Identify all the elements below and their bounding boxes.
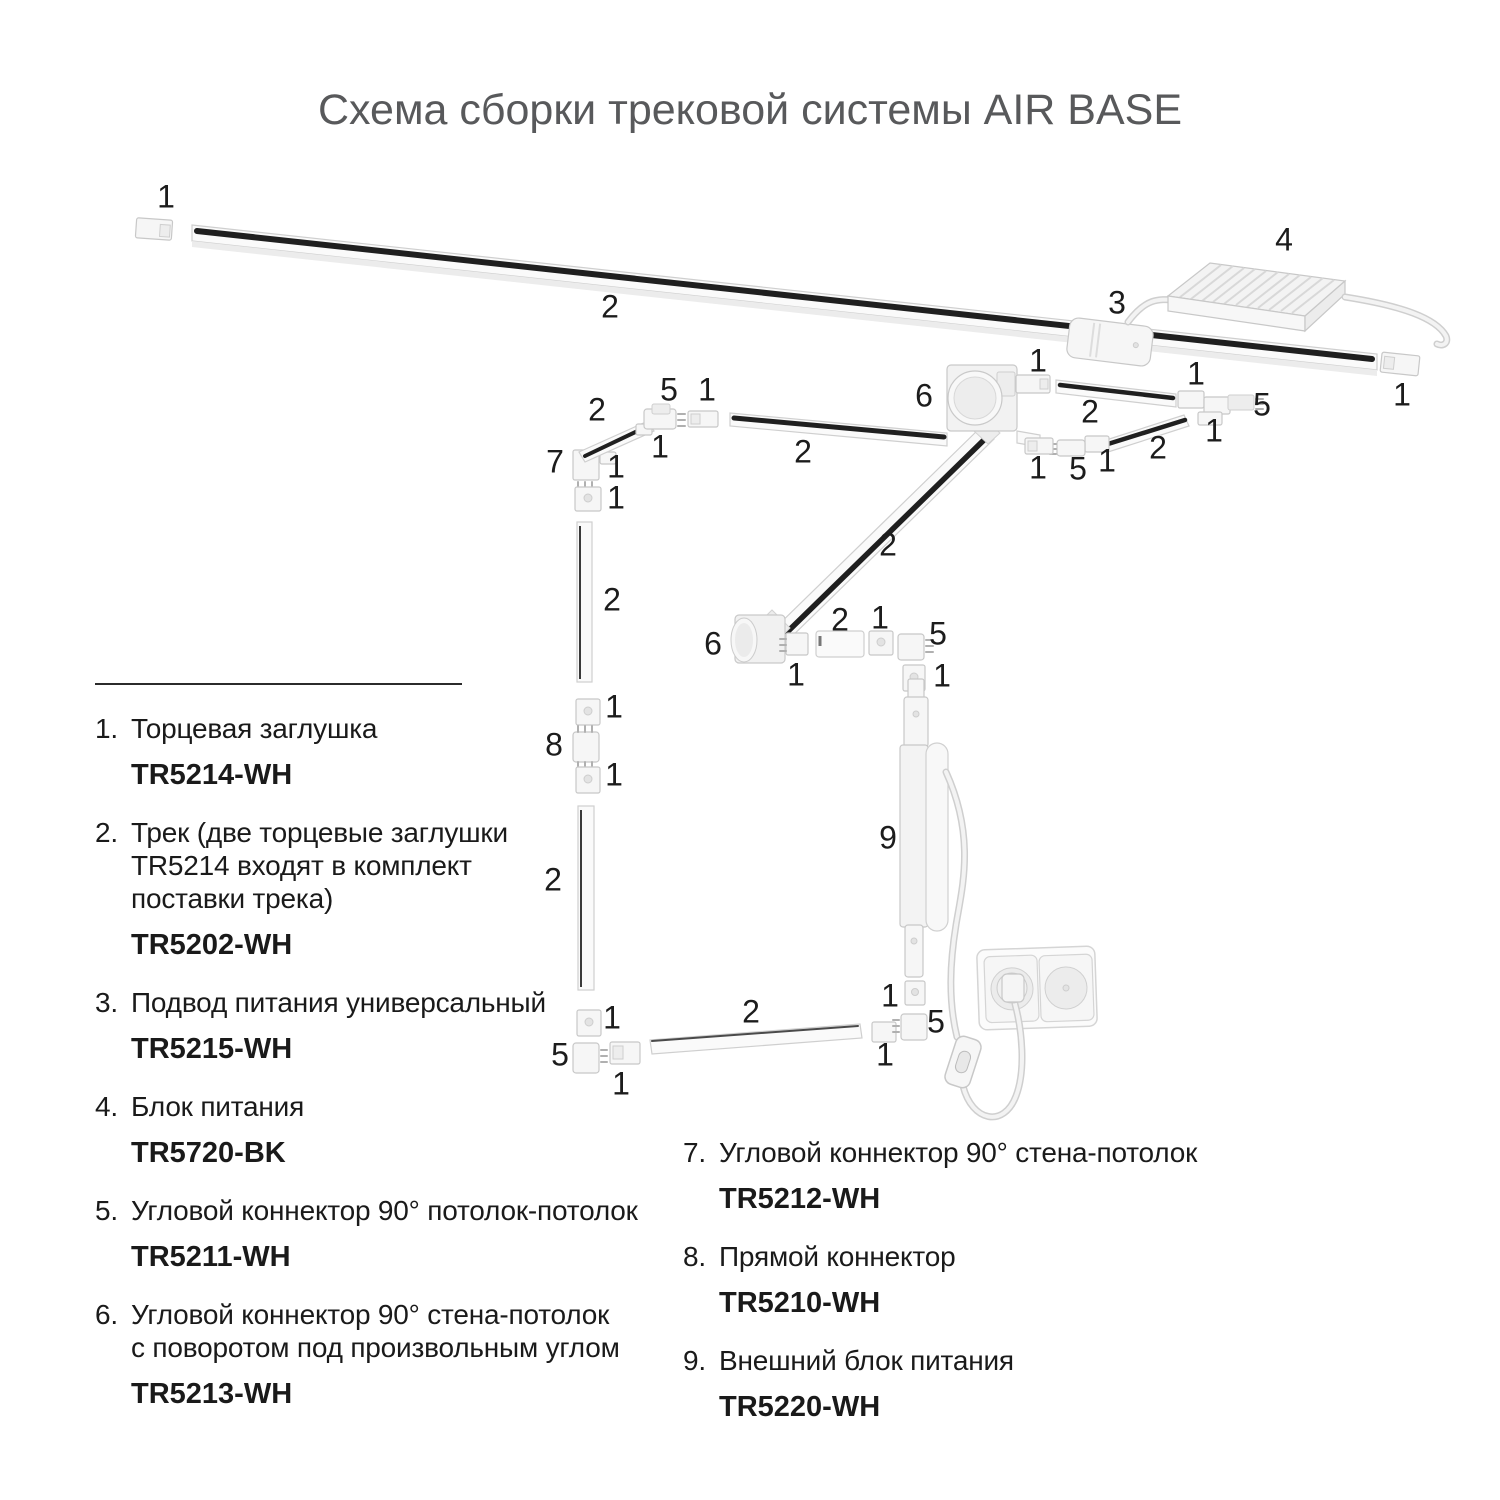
legend-item: 1. Торцевая заглушка TR5214-WH (95, 712, 655, 792)
legend-item-code: TR5720-BK (131, 1137, 655, 1170)
track-short-mid (816, 631, 864, 657)
legend-divider (95, 683, 462, 685)
legend-item: 4. Блок питания TR5720-BK (95, 1090, 655, 1170)
swivel-connector-6-lower (731, 610, 790, 663)
legend-item-text: Угловой коннектор 90° стена-потолокс пов… (131, 1298, 655, 1364)
power-supply-4 (1168, 263, 1447, 345)
psu-cord (946, 772, 965, 1037)
legend-item-code: TR5215-WH (131, 1033, 655, 1066)
legend-item-number: 9. (683, 1344, 719, 1377)
track-vertical-upper (577, 522, 592, 682)
legend-item-number: 5. (95, 1194, 131, 1227)
external-psu-9 (900, 679, 948, 977)
legend-item-code: TR5213-WH (131, 1378, 655, 1411)
end-cap (1016, 375, 1050, 393)
legend-item-code: TR5220-WH (719, 1391, 1243, 1424)
assembly-diagram-page: Схема сборки трековой системы AIR BASE (0, 0, 1500, 1500)
corner-connector-5 (893, 1014, 927, 1040)
legend-item-number: 2. (95, 816, 131, 915)
corner-connector-5 (1204, 395, 1263, 414)
end-cap (688, 411, 718, 427)
track-loop-top (1056, 380, 1176, 407)
legend-item-code: TR5202-WH (131, 929, 655, 962)
legend-item-code: TR5212-WH (719, 1183, 1243, 1216)
end-cap (905, 981, 925, 1005)
power-feed-3 (1066, 317, 1154, 367)
legend-item: 7. Угловой коннектор 90° стена-потолок T… (683, 1136, 1243, 1216)
end-cap (1198, 412, 1222, 425)
legend-item-number: 7. (683, 1136, 719, 1169)
end-cap (1025, 438, 1053, 454)
legend-item-number: 8. (683, 1240, 719, 1273)
legend-item: 5. Угловой коннектор 90° потолок-потолок… (95, 1194, 655, 1274)
inline-switch (943, 1034, 983, 1090)
corner-connector-5 (644, 404, 685, 429)
legend-item-code: TR5210-WH (719, 1287, 1243, 1320)
wall-socket (977, 946, 1098, 1030)
legend-item-text: Торцевая заглушка (131, 712, 655, 745)
track-loop-bottom (1103, 415, 1189, 452)
end-cap (1178, 391, 1204, 408)
legend-item-number: 4. (95, 1090, 131, 1123)
end-cap-top-right (1380, 352, 1420, 376)
track-bottom (650, 1024, 862, 1054)
legend-item-text: Угловой коннектор 90° потолок-потолок (131, 1194, 655, 1227)
legend-item-text: Внешний блок питания (719, 1344, 1243, 1377)
legend-item-text: Прямой коннектор (719, 1240, 1243, 1273)
legend-right-column: 7. Угловой коннектор 90° стена-потолок T… (683, 1136, 1243, 1448)
legend-item-number: 1. (95, 712, 131, 745)
legend-item-code: TR5214-WH (131, 759, 655, 792)
legend-item-number: 3. (95, 986, 131, 1019)
legend-item: 8. Прямой коннектор TR5210-WH (683, 1240, 1243, 1320)
end-cap-top-left (135, 218, 172, 240)
legend-item-text: Подвод питания универсальный (131, 986, 655, 1019)
power-plug (997, 973, 1027, 1003)
end-cap-below-7 (575, 487, 601, 511)
legend-item-text: Блок питания (131, 1090, 655, 1123)
legend-item: 9. Внешний блок питания TR5220-WH (683, 1344, 1243, 1424)
end-cap (869, 631, 893, 655)
legend-item: 2. Трек (две торцевые заглушкиTR5214 вхо… (95, 816, 655, 962)
legend-left-column: 1. Торцевая заглушка TR5214-WH 2. Трек (… (95, 712, 655, 1435)
legend-item-text: Трек (две торцевые заглушкиTR5214 входят… (131, 816, 655, 915)
legend-item-text: Угловой коннектор 90° стена-потолок (719, 1136, 1243, 1169)
track-mid-horizontal (730, 413, 947, 446)
legend-item: 6. Угловой коннектор 90° стена-потолокс … (95, 1298, 655, 1411)
corner-connector-5 (898, 634, 933, 660)
track-diagonal (766, 427, 994, 649)
legend-item: 3. Подвод питания универсальный TR5215-W… (95, 986, 655, 1066)
legend-item-number: 6. (95, 1298, 131, 1364)
corner-connector-5 (1050, 440, 1085, 456)
legend-item-code: TR5211-WH (131, 1241, 655, 1274)
end-cap (1085, 436, 1109, 452)
